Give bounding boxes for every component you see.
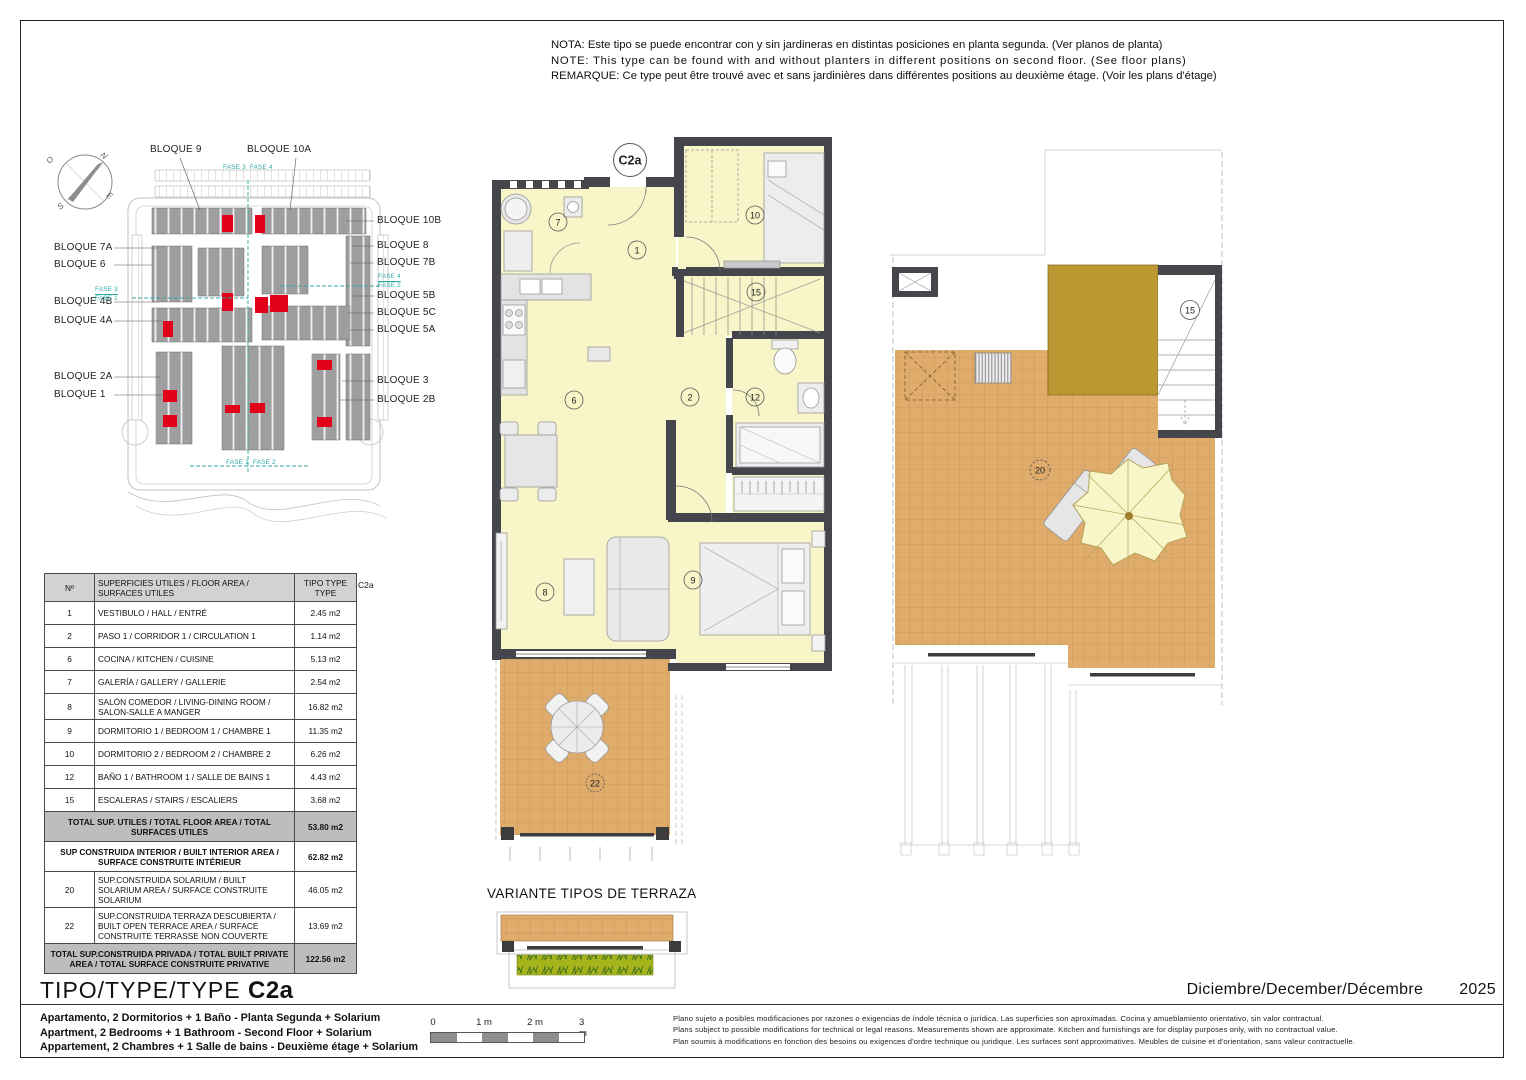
legal-disclaimer: Plano sujeto a posibles modificaciones p… — [673, 1013, 1493, 1047]
fase-right-top: FASE 4 — [378, 273, 401, 282]
row-desc: VESTIBULO / HALL / ENTRÉ — [95, 602, 295, 625]
variant-diagram-drawing — [495, 906, 690, 992]
row-num: 9 — [45, 720, 95, 743]
disclaimer-fr: Plan soumis à modifications en fonction … — [673, 1036, 1493, 1047]
table-type-label: C2a — [358, 580, 374, 590]
type-description: Apartamento, 2 Dormitorios + 1 Baño - Pl… — [40, 1011, 418, 1055]
variant-plants — [517, 955, 653, 975]
row-num: 15 — [45, 789, 95, 812]
compass-o: O — [45, 155, 55, 166]
variant-diagram — [495, 906, 690, 992]
terrace — [496, 655, 682, 861]
variant-post-left — [502, 941, 514, 952]
room-number-bathroom: 12 — [750, 393, 760, 403]
room-number-bedroom2: 10 — [750, 211, 760, 221]
table-total-private-row: TOTAL SUP.CONSTRUIDA PRIVADA / TOTAL BUI… — [45, 944, 357, 974]
floor-plan: C2a 1 7 10 15 6 2 12 8 9 22 — [480, 135, 850, 875]
label-bloque-9: BLOQUE 9 — [150, 144, 202, 155]
table-total-utiles-row: TOTAL SUP. UTILES / TOTAL FLOOR AREA / T… — [45, 812, 357, 842]
label-fase-3-1: FASE 3 FASE 1 — [95, 286, 118, 302]
row-num: 22 — [45, 908, 95, 944]
label-bloque-2a: BLOQUE 2A — [54, 371, 113, 382]
table-row: 8SALÓN COMEDOR / LIVING-DINING ROOM / SA… — [45, 694, 357, 720]
built-interior-value: 62.82 m2 — [295, 842, 357, 872]
row-value: 4.43 m2 — [295, 766, 357, 789]
room-number-stairs: 15 — [751, 288, 761, 298]
solarium-stairwell: 15 — [1158, 265, 1222, 438]
table-row: 20SUP.CONSTRUIDA SOLARIUM / BUILT SOLARI… — [45, 872, 357, 908]
row-value: 1.14 m2 — [295, 625, 357, 648]
total-private-value: 122.56 m2 — [295, 944, 357, 974]
plan-sheet: NOTA: Este tipo se puede encontrar con y… — [0, 0, 1526, 1080]
fase-bottom-left: FASE 1 — [226, 459, 249, 466]
fase-left-bottom: FASE 1 — [95, 295, 118, 302]
row-desc: ESCALERAS / STAIRS / ESCALIERS — [95, 789, 295, 812]
scale-bar: 0 1 m 2 m 3 m — [430, 1017, 600, 1049]
solarium-plan-drawing: 15 — [885, 145, 1235, 865]
label-bloque-10b: BLOQUE 10B — [377, 215, 441, 226]
label-bloque-5b: BLOQUE 5B — [377, 290, 436, 301]
site-buildings — [152, 208, 370, 450]
label-bloque-1: BLOQUE 1 — [54, 389, 106, 400]
row-num: 12 — [45, 766, 95, 789]
compass-s: S — [56, 201, 66, 212]
variant-terrace-grid — [501, 915, 673, 941]
scale-tick-1: 1 m — [476, 1017, 492, 1028]
row-value: 13.69 m2 — [295, 908, 357, 944]
sheet-date: Diciembre/December/Décembre 2025 — [1187, 981, 1496, 999]
sheet-title-prefix: TIPO/TYPE/TYPE — [40, 977, 241, 1003]
row-num: 1 — [45, 602, 95, 625]
table-row: 9DORMITORIO 1 / BEDROOM 1 / CHAMBRE 111.… — [45, 720, 357, 743]
sheet-date-months: Diciembre/December/Décembre — [1187, 981, 1424, 999]
label-bloque-7b: BLOQUE 7B — [377, 257, 436, 268]
table-built-interior-row: SUP CONSTRUIDA INTERIOR / BUILT INTERIOR… — [45, 842, 357, 872]
table-header-row: Nº SUPERFICIES UTILES / FLOOR AREA / SUR… — [45, 574, 357, 602]
site-plan-drawing: N O S E — [40, 140, 452, 532]
fase-left-top: FASE 3 — [95, 286, 118, 295]
closet — [734, 477, 824, 511]
type-description-es: Apartamento, 2 Dormitorios + 1 Baño - Pl… — [40, 1011, 418, 1026]
row-value: 16.82 m2 — [295, 694, 357, 720]
header-desc: SUPERFICIES UTILES / FLOOR AREA / SURFAC… — [95, 574, 295, 602]
table-row: 10DORMITORIO 2 / BEDROOM 2 / CHAMBRE 26.… — [45, 743, 357, 766]
label-bloque-3: BLOQUE 3 — [377, 375, 429, 386]
vent-grille — [975, 353, 1011, 383]
row-num: 6 — [45, 648, 95, 671]
row-num: 20 — [45, 872, 95, 908]
variant-railing — [527, 946, 643, 950]
room-number-gallery: 7 — [555, 218, 560, 228]
type-badge: C2a — [614, 144, 647, 177]
table-row: 2PASO 1 / CORRIDOR 1 / CIRCULATION 11.14… — [45, 625, 357, 648]
total-utiles-desc: TOTAL SUP. UTILES / TOTAL FLOOR AREA / T… — [45, 812, 295, 842]
scale-tick-2: 2 m — [527, 1017, 543, 1028]
row-num: 7 — [45, 671, 95, 694]
disclaimer-en: Plans subject to possible modifications … — [673, 1024, 1493, 1035]
sheet-title: TIPO/TYPE/TYPE C2a — [40, 977, 294, 1005]
row-value: 46.05 m2 — [295, 872, 357, 908]
row-value: 11.35 m2 — [295, 720, 357, 743]
label-bloque-4a: BLOQUE 4A — [54, 315, 113, 326]
solarium-plan: 15 — [885, 145, 1235, 865]
bedroom1-furniture — [700, 531, 825, 651]
row-desc: PASO 1 / CORRIDOR 1 / CIRCULATION 1 — [95, 625, 295, 648]
compass-icon: N O S E — [45, 150, 115, 211]
header-type: TIPO TYPE TYPE — [295, 574, 357, 602]
row-desc: SUP.CONSTRUIDA TERRAZA DESCUBIERTA / BUI… — [95, 908, 295, 944]
area-table: Nº SUPERFICIES UTILES / FLOOR AREA / SUR… — [44, 573, 357, 974]
site-plan: N O S E — [40, 140, 452, 532]
header-num: Nº — [45, 574, 95, 602]
row-desc: GALERÍA / GALLERY / GALLERIE — [95, 671, 295, 694]
scale-bar-segments — [430, 1032, 585, 1043]
solarium-stairs-number: 15 — [1185, 306, 1195, 316]
room-number-corridor: 2 — [687, 393, 692, 403]
scale-tick-0: 0 — [430, 1017, 435, 1028]
sheet-title-type: C2a — [248, 977, 294, 1004]
label-fase-1-2: FASE 1 FASE 2 — [226, 459, 276, 467]
room-number-hall: 1 — [634, 246, 639, 256]
table-row: 1VESTIBULO / HALL / ENTRÉ2.45 m2 — [45, 602, 357, 625]
label-bloque-8: BLOQUE 8 — [377, 240, 429, 251]
table-row: 22SUP.CONSTRUIDA TERRAZA DESCUBIERTA / B… — [45, 908, 357, 944]
floor-plan-drawing: C2a 1 7 10 15 6 2 12 8 9 22 — [480, 135, 850, 875]
type-badge-label: C2a — [619, 154, 643, 168]
row-num: 2 — [45, 625, 95, 648]
type-description-en: Apartment, 2 Bedrooms + 1 Bathroom - Sec… — [40, 1026, 418, 1041]
room-number-living: 8 — [542, 588, 547, 598]
stair-bulkhead — [1048, 265, 1158, 395]
fase-bottom-right: FASE 2 — [253, 459, 276, 466]
note-en: NOTE: This type can be found with and wi… — [551, 54, 1217, 70]
compass-e: E — [105, 190, 115, 201]
label-bloque-7a: BLOQUE 7A — [54, 242, 113, 253]
row-value: 5.13 m2 — [295, 648, 357, 671]
solarium-window-block — [892, 267, 938, 297]
row-desc: BAÑO 1 / BATHROOM 1 / SALLE DE BAINS 1 — [95, 766, 295, 789]
label-fase-4-2: FASE 4 FASE 2 — [378, 273, 401, 289]
fase-top-left: FASE 3 — [223, 164, 246, 171]
table-row: 12BAÑO 1 / BATHROOM 1 / SALLE DE BAINS 1… — [45, 766, 357, 789]
row-value: 2.45 m2 — [295, 602, 357, 625]
row-value: 6.26 m2 — [295, 743, 357, 766]
label-bloque-6: BLOQUE 6 — [54, 259, 106, 270]
row-desc: COCINA / KITCHEN / CUISINE — [95, 648, 295, 671]
total-utiles-value: 53.80 m2 — [295, 812, 357, 842]
table-row: 6COCINA / KITCHEN / CUISINE5.13 m2 — [45, 648, 357, 671]
variant-post-right — [669, 941, 681, 952]
table-row: 15ESCALERAS / STAIRS / ESCALIERS3.68 m2 — [45, 789, 357, 812]
disclaimer-es: Plano sujeto a posibles modificaciones p… — [673, 1013, 1493, 1024]
row-desc: DORMITORIO 2 / BEDROOM 2 / CHAMBRE 2 — [95, 743, 295, 766]
label-bloque-5a: BLOQUE 5A — [377, 324, 436, 335]
row-desc: SUP.CONSTRUIDA SOLARIUM / BUILT SOLARIUM… — [95, 872, 295, 908]
row-num: 10 — [45, 743, 95, 766]
room-number-bedroom1: 9 — [690, 576, 695, 586]
fase-top-right: FASE 4 — [250, 164, 273, 171]
label-fase-3-4: FASE 3 FASE 4 — [223, 164, 273, 172]
fase-right-bottom: FASE 2 — [378, 282, 401, 289]
room-number-terrace: 22 — [590, 779, 600, 789]
note-es: NOTA: Este tipo se puede encontrar con y… — [551, 38, 1217, 54]
total-private-desc: TOTAL SUP.CONSTRUIDA PRIVADA / TOTAL BUI… — [45, 944, 295, 974]
note-block: NOTA: Este tipo se puede encontrar con y… — [551, 38, 1217, 85]
built-interior-desc: SUP CONSTRUIDA INTERIOR / BUILT INTERIOR… — [45, 842, 295, 872]
row-desc: DORMITORIO 1 / BEDROOM 1 / CHAMBRE 1 — [95, 720, 295, 743]
variant-title: VARIANTE TIPOS DE TERRAZA — [487, 886, 697, 901]
note-fr: REMARQUE: Ce type peut être trouvé avec … — [551, 69, 1217, 85]
row-value: 2.54 m2 — [295, 671, 357, 694]
row-value: 3.68 m2 — [295, 789, 357, 812]
label-bloque-2b: BLOQUE 2B — [377, 394, 436, 405]
table-row: 7GALERÍA / GALLERY / GALLERIE2.54 m2 — [45, 671, 357, 694]
solarium-railings — [895, 653, 1222, 855]
type-description-fr: Appartement, 2 Chambres + 1 Salle de bai… — [40, 1040, 418, 1055]
row-desc: SALÓN COMEDOR / LIVING-DINING ROOM / SAL… — [95, 694, 295, 720]
label-bloque-5c: BLOQUE 5C — [377, 307, 436, 318]
room-number-kitchen: 6 — [571, 396, 576, 406]
area-table-wrap: Nº SUPERFICIES UTILES / FLOOR AREA / SUR… — [44, 573, 357, 974]
label-bloque-10a: BLOQUE 10A — [247, 144, 311, 155]
sheet-date-year: 2025 — [1459, 981, 1496, 999]
row-num: 8 — [45, 694, 95, 720]
solarium-number-label: 20 — [1035, 466, 1045, 476]
